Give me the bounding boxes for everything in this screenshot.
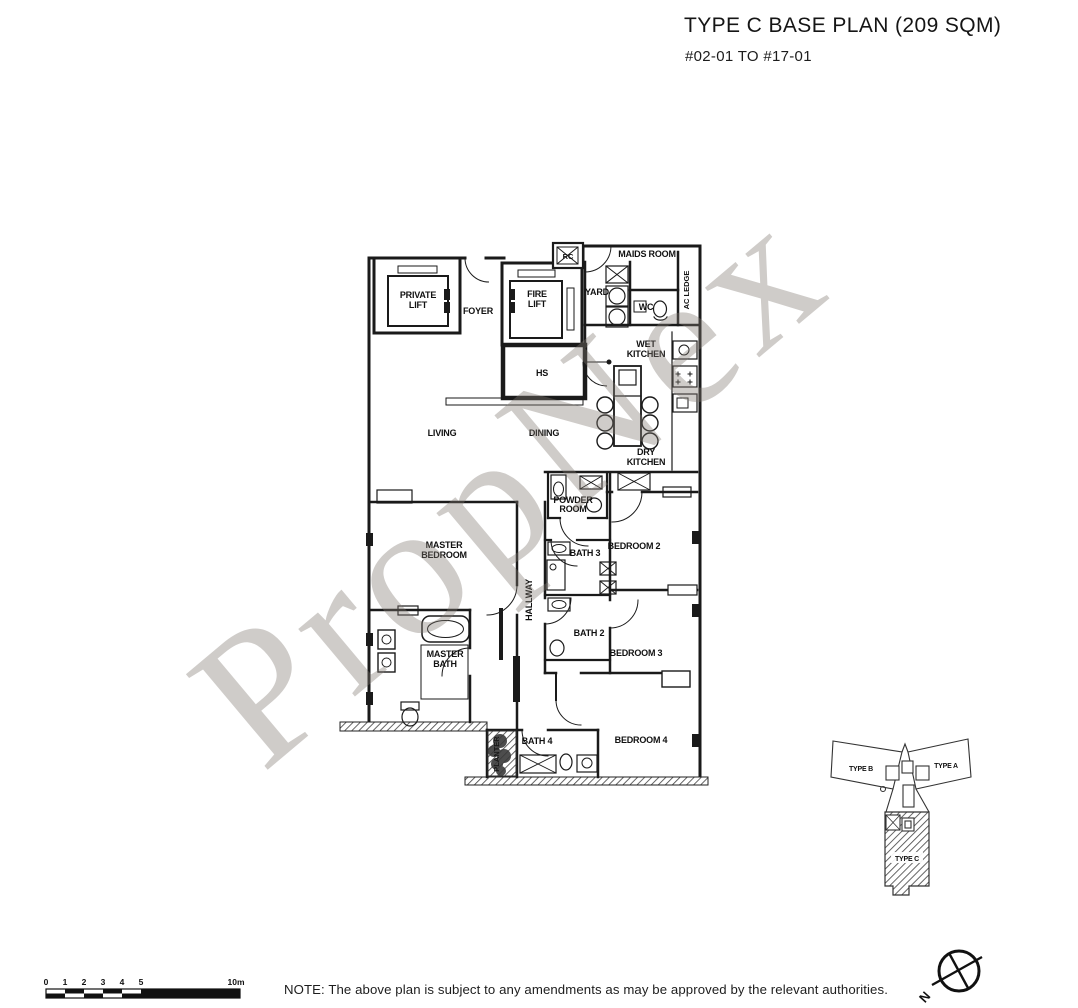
window-marker (692, 734, 699, 747)
label-hs: HS (536, 368, 548, 378)
kitchen-sink-icon (673, 341, 697, 359)
label-living: LIVING (428, 428, 457, 438)
scale-bar: 0 1 2 3 4 5 10m (44, 977, 245, 998)
bath2-toilet-icon (550, 640, 564, 656)
compass-north-label: N (916, 988, 933, 1005)
label-ac-ledge: AC LEDGE (682, 271, 691, 310)
window-marker (366, 633, 373, 646)
label-fire-lift: FIRE (527, 289, 547, 299)
window-marker (366, 692, 373, 705)
label-wet-kitchen: WET (636, 339, 656, 349)
svg-text:LIFT: LIFT (409, 300, 428, 310)
floor-plan-drawing: PRIVATE LIFT FOYER FIRE LIFT RC MAIDS RO… (0, 0, 1078, 1008)
svg-text:LIFT: LIFT (528, 299, 547, 309)
label-dining: DINING (529, 428, 559, 438)
lift-door-icon (444, 289, 450, 300)
basin-icon (378, 653, 395, 672)
label-rc: RC (563, 252, 574, 261)
bedrooms (545, 492, 697, 725)
yard-door-arc (585, 246, 611, 272)
key-plan-label-type-c: TYPE C (895, 856, 919, 863)
label-bath-3: BATH 3 (570, 548, 601, 558)
lift-door-icon (509, 302, 515, 313)
floor-plan-page: { "header": { "title": "TYPE C BASE PLAN… (0, 0, 1078, 1008)
master-suite (369, 490, 545, 730)
bath2-sink-icon (548, 598, 570, 611)
label-yard: YARD (585, 287, 610, 297)
lift-door-icon (444, 302, 450, 313)
label-private-lift: PRIVATE (400, 290, 436, 300)
scale-tick-4: 4 (120, 977, 125, 987)
label-bedroom-4: BEDROOM 4 (615, 735, 668, 745)
stool-icon (642, 415, 658, 431)
bedroom4-door-arc (556, 700, 581, 725)
basin-icon (378, 630, 395, 649)
svg-text:KITCHEN: KITCHEN (627, 457, 666, 467)
stool-icon (642, 397, 658, 413)
scale-tick-0: 0 (44, 977, 49, 987)
label-hallway: HALLWAY (524, 579, 534, 621)
key-plan-wing-b (831, 741, 902, 789)
dryer-icon (609, 309, 625, 325)
stool-icon (597, 397, 613, 413)
stool-icon (597, 433, 613, 449)
key-plan-label-type-b: TYPE B (849, 766, 873, 773)
scale-tick-3: 3 (101, 977, 106, 987)
island-counter (614, 366, 641, 446)
svg-text:BATH: BATH (433, 659, 457, 669)
svg-text:KITCHEN: KITCHEN (627, 349, 666, 359)
label-foyer: FOYER (463, 306, 494, 316)
bedroom3-door-arc (610, 600, 638, 628)
scale-tick-2: 2 (82, 977, 87, 987)
label-bath-2: BATH 2 (574, 628, 605, 638)
svg-text:BEDROOM: BEDROOM (421, 550, 467, 560)
compass: N (916, 951, 982, 1005)
washer-icon (609, 288, 625, 304)
toilet-icon (401, 702, 419, 710)
lift-door-icon (509, 289, 515, 300)
label-bath-4: BATH 4 (522, 736, 553, 746)
service-area (585, 246, 700, 398)
scale-tick-5: 5 (139, 977, 144, 987)
window-marker (692, 531, 699, 544)
svg-text:ROOM: ROOM (559, 504, 586, 514)
label-master-bedroom: MASTER (426, 540, 464, 550)
label-wc: WC (639, 302, 654, 312)
key-plan: TYPE B TYPE A TYPE C (831, 739, 971, 895)
label-bedroom-3: BEDROOM 3 (610, 648, 663, 658)
edge-hatch-bands (340, 722, 708, 785)
stool-icon (597, 415, 613, 431)
window-marker (692, 604, 699, 617)
label-bedroom-2: BEDROOM 2 (608, 541, 661, 551)
scale-tick-1: 1 (63, 977, 68, 987)
label-planter: PLANTER (492, 736, 501, 772)
lift-lobby (374, 243, 612, 405)
window-markers (366, 531, 699, 747)
bathtub-icon (422, 616, 469, 642)
entrance-door-arc (465, 258, 489, 282)
label-maids-room: MAIDS ROOM (618, 249, 676, 259)
window-marker (366, 533, 373, 546)
wc-toilet-icon (654, 301, 667, 317)
stove-icon (673, 366, 697, 387)
bath3-shower-icon (547, 560, 565, 590)
bedroom2-door-arc (612, 492, 642, 522)
label-dry-kitchen: DRY (637, 447, 655, 457)
bath4-toilet-icon (560, 754, 572, 770)
label-master-bath: MASTER (427, 649, 465, 659)
key-plan-label-type-a: TYPE A (934, 763, 958, 770)
scale-tick-10m: 10m (227, 977, 244, 987)
